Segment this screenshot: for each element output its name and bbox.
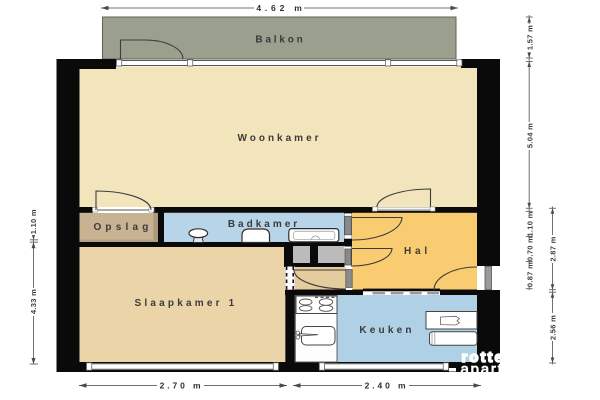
svg-text:0.87 m: 0.87 m — [526, 262, 535, 287]
svg-text:2.70 m: 2.70 m — [160, 381, 204, 391]
svg-text:4.33 m: 4.33 m — [29, 289, 38, 314]
svg-text:apartments: apartments — [461, 361, 554, 378]
svg-text:5.04 m: 5.04 m — [526, 123, 535, 148]
svg-text:2.87 m: 2.87 m — [549, 236, 558, 261]
svg-text:1.10 m: 1.10 m — [29, 209, 38, 234]
svg-text:2.40 m: 2.40 m — [365, 381, 409, 391]
svg-text:Opslag: Opslag — [93, 222, 152, 233]
svg-text:Hal: Hal — [404, 246, 431, 257]
svg-text:Badkamer: Badkamer — [228, 219, 300, 230]
svg-text:Slaapkamer 1: Slaapkamer 1 — [135, 298, 238, 309]
svg-text:2.56 m: 2.56 m — [549, 315, 558, 340]
svg-text:1.10 m: 1.10 m — [526, 211, 535, 236]
svg-text:Keuken: Keuken — [359, 325, 414, 336]
svg-text:Balkon: Balkon — [255, 35, 305, 46]
svg-text:1.57 m: 1.57 m — [526, 25, 535, 50]
svg-text:0.70 m: 0.70 m — [526, 236, 535, 261]
svg-text:Woonkamer: Woonkamer — [237, 133, 321, 144]
svg-text:4.62 m: 4.62 m — [256, 3, 305, 13]
